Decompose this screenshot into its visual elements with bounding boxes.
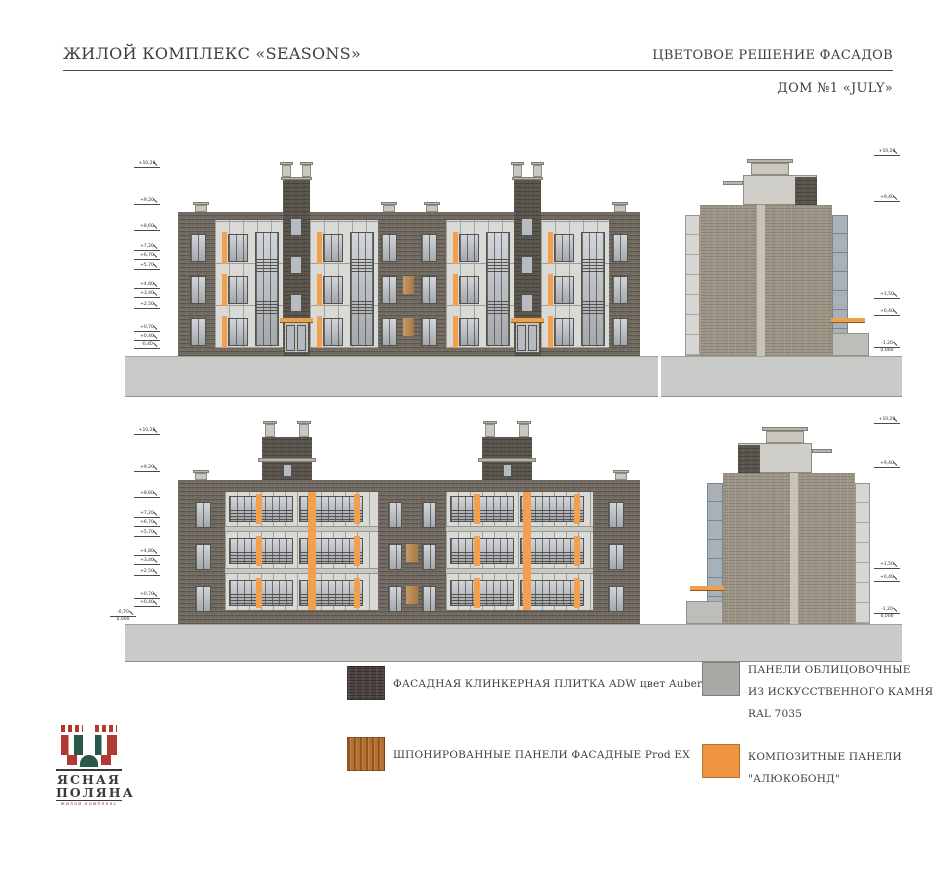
elevation-marker: +9,20 — [134, 465, 160, 472]
chimney-cap — [511, 162, 524, 165]
roof-vent-cap — [193, 470, 209, 473]
entrance-door — [286, 325, 295, 351]
legend-label: ПАНЕЛИ ОБЛИЦОВОЧНЫЕ — [748, 659, 933, 681]
clinker-tile-swatch — [347, 666, 385, 700]
roof-vent — [426, 205, 438, 212]
elevation-marker: +4,80 — [134, 549, 160, 556]
roof-vent-cap — [381, 202, 397, 205]
legend-label: ШПОНИРОВАННЫЕ ПАНЕЛИ ФАСАДНЫЕ Prod EX — [393, 744, 690, 766]
drawing-sheet: ЖИЛОЙ КОМПЛЕКС «SEASONS» ЦВЕТОВОЕ РЕШЕНИ… — [0, 0, 940, 888]
elevation-marker: +0,40 — [874, 309, 900, 316]
rear-railing — [450, 552, 514, 562]
side-left-strip — [685, 215, 700, 356]
roof-vent — [615, 473, 627, 480]
panel-window — [228, 318, 248, 346]
panel-window — [323, 318, 343, 346]
penthouse-dark — [795, 177, 817, 205]
brick-window — [190, 276, 206, 304]
ground-strip-front-top — [125, 356, 658, 397]
vent-cap — [723, 181, 743, 185]
floor-slab — [446, 568, 593, 574]
roof-vent — [383, 205, 395, 212]
panel-window — [228, 234, 248, 262]
brick-window — [421, 234, 437, 262]
accent-strip — [317, 232, 322, 264]
elevation-marker: +0,40 — [134, 334, 160, 341]
elevation-marker: +0,70 — [134, 592, 160, 599]
chimney — [766, 431, 804, 443]
elevation-marker: +7,20 — [134, 244, 160, 251]
elevation-marker: +10,20 — [874, 149, 900, 156]
penthouse-dark — [738, 445, 760, 473]
composite-panels-swatch — [702, 744, 740, 778]
ground-strip-front-bottom — [125, 624, 658, 662]
tower-canopy — [478, 458, 536, 462]
elevation-marker: +5,70 — [134, 530, 160, 537]
balcony-glazing — [350, 232, 374, 346]
sheet-title: ЦВЕТОВОЕ РЕШЕНИЕ ФАСАДОВ — [652, 48, 893, 63]
brick-window — [195, 544, 211, 570]
tower-window — [290, 218, 302, 236]
logo-mark — [56, 723, 122, 767]
roof-vent-cap — [424, 202, 440, 205]
elevation-marker: +1,50 — [874, 292, 900, 299]
elevation-marker: +3,40 — [134, 558, 160, 565]
chimney — [282, 165, 291, 177]
panel-window — [459, 318, 479, 346]
brick-window — [190, 318, 206, 346]
brick-window — [388, 544, 402, 570]
entrance-door — [528, 325, 537, 351]
rear-railing — [450, 594, 514, 604]
logo-tower-right-icon — [95, 725, 117, 765]
roof-vent — [195, 473, 207, 480]
brick-window — [381, 276, 397, 304]
side-left-strip — [855, 483, 870, 624]
elevation-marker: -1,200,000 — [874, 607, 900, 619]
header-rule — [63, 70, 893, 71]
ground-strip-side-bottom — [658, 624, 902, 662]
elevation-marker: +9,40 — [874, 461, 900, 468]
elevation-marker: +6,70 — [134, 253, 160, 260]
accent-strip — [354, 578, 360, 608]
accent-strip — [574, 578, 580, 608]
wood-panel — [403, 276, 414, 294]
balcony-glazing — [255, 232, 279, 346]
accent-strip — [256, 578, 262, 608]
brick-window — [608, 544, 624, 570]
tower-window — [521, 256, 533, 274]
elevation-marker: +2,50 — [134, 569, 160, 576]
accent-strip — [308, 492, 316, 610]
roof-vent — [195, 205, 207, 212]
tower-window — [283, 464, 292, 477]
side-base — [686, 601, 723, 624]
side-wall — [700, 205, 832, 356]
elevation-marker: +8,60 — [134, 491, 160, 498]
elevation-marker: +2,50 — [134, 302, 160, 309]
accent-strip — [256, 536, 262, 566]
accent-strip — [453, 274, 458, 306]
brick-window — [422, 502, 436, 528]
legend-label: "АЛЮКОБОНД" — [748, 768, 902, 790]
side-elevation-drawing-bottom — [685, 433, 870, 624]
balcony-railing — [486, 300, 510, 314]
tower-window — [521, 294, 533, 312]
brick-window — [421, 318, 437, 346]
ground-strip-side-top — [661, 356, 902, 397]
elevation-marker: +6,70 — [134, 520, 160, 527]
logo: ЯСНАЯ ПОЛЯНА жилой комплекс — [56, 723, 122, 807]
chimney-cap — [531, 162, 544, 165]
balcony-railing — [581, 258, 605, 272]
logo-name-line2: ПОЛЯНА — [56, 786, 122, 799]
brick-window — [612, 234, 628, 262]
roof-vent — [614, 205, 626, 212]
balcony-railing — [581, 300, 605, 314]
brick-window — [381, 234, 397, 262]
elevation-marker: +8,60 — [134, 224, 160, 231]
accent-strip — [222, 274, 227, 306]
tower-window — [503, 464, 512, 477]
elevation-marker: -1,200,000 — [874, 341, 900, 353]
elevation-marker: +10,20 — [874, 417, 900, 424]
panel-window — [554, 234, 574, 262]
chimney-cap — [762, 427, 808, 431]
elevation-marker: +9,20 — [134, 198, 160, 205]
balcony-railing — [255, 258, 279, 272]
elevation-marker: +10,20 — [134, 161, 160, 168]
brick-window — [388, 502, 402, 528]
accent-strip — [453, 316, 458, 348]
balcony-railing — [486, 258, 510, 272]
tower-canopy — [258, 458, 316, 462]
panel-window — [323, 234, 343, 262]
accent-strip — [222, 232, 227, 264]
side-seam — [757, 205, 765, 356]
accent-strip — [574, 494, 580, 524]
tower-window — [290, 256, 302, 274]
accent-strip — [474, 536, 480, 566]
side-seam — [790, 473, 798, 624]
balcony-railing — [350, 300, 374, 314]
floor-slab — [225, 568, 378, 574]
panel-window — [459, 234, 479, 262]
side-canopy — [831, 318, 865, 323]
roof-vent-cap — [193, 202, 209, 205]
legend-label: ФАСАДНАЯ КЛИНКЕРНАЯ ПЛИТКА ADW цвет Aube… — [393, 673, 726, 695]
side-wall — [723, 473, 855, 624]
brick-window — [388, 586, 402, 612]
entrance-door — [297, 325, 306, 351]
chimney-cap — [483, 421, 497, 424]
elevation-marker: +4,80 — [134, 282, 160, 289]
legend-label: КОМПОЗИТНЫЕ ПАНЕЛИ — [748, 746, 902, 768]
accent-strip — [256, 494, 262, 524]
elevation-marker: -0,700,000 — [110, 610, 136, 622]
elevation-marker: +3,40 — [134, 291, 160, 298]
accent-strip — [222, 316, 227, 348]
floor-slab — [446, 526, 593, 532]
balcony-railing — [255, 300, 279, 314]
panel-window — [228, 276, 248, 304]
accent-strip — [548, 232, 553, 264]
balcony-glazing — [486, 232, 510, 346]
entrance-door — [517, 325, 526, 351]
front-elevation-drawing — [178, 212, 640, 356]
accent-strip — [317, 316, 322, 348]
chimney — [302, 165, 311, 177]
accent-strip — [317, 274, 322, 306]
legend-label: ИЗ ИСКУССТВЕННОГО КАМНЯ — [748, 681, 933, 703]
chimney — [513, 165, 522, 177]
legend-label: RAL 7035 — [748, 703, 933, 725]
brick-window — [195, 586, 211, 612]
rear-elevation-drawing — [178, 480, 640, 624]
chimney — [299, 424, 309, 437]
wood-panel — [406, 586, 418, 604]
elevation-marker: +10,20 — [134, 428, 160, 435]
chimney — [533, 165, 542, 177]
chimney-cap — [300, 162, 313, 165]
accent-strip — [354, 494, 360, 524]
logo-caption: жилой комплекс — [56, 802, 122, 807]
logo-arch-icon — [80, 755, 98, 767]
accent-strip — [474, 494, 480, 524]
elevation-marker: -0,40 — [134, 342, 160, 349]
brick-window — [422, 586, 436, 612]
artificial-stone-swatch — [702, 662, 740, 696]
chimney-cap — [297, 421, 311, 424]
accent-strip — [548, 274, 553, 306]
brick-window — [381, 318, 397, 346]
chimney — [519, 424, 529, 437]
chimney-cap — [280, 162, 293, 165]
side-canopy — [690, 586, 724, 591]
accent-strip — [523, 492, 531, 610]
rear-railing — [450, 510, 514, 520]
house-subtitle: ДОМ №1 «JULY» — [777, 81, 893, 96]
brick-window — [608, 586, 624, 612]
side-base — [832, 333, 869, 356]
floor-slab — [225, 526, 378, 532]
brick-window — [612, 318, 628, 346]
brick-window — [612, 276, 628, 304]
panel-window — [459, 276, 479, 304]
accent-strip — [474, 578, 480, 608]
logo-rule — [56, 769, 122, 771]
brick-window — [421, 276, 437, 304]
roof-vent-cap — [612, 202, 628, 205]
chimney — [265, 424, 275, 437]
veneered-panels-swatch — [347, 737, 385, 771]
balcony-glazing — [581, 232, 605, 346]
panel-window — [323, 276, 343, 304]
logo-tower-left-icon — [61, 725, 83, 765]
logo-rule — [56, 800, 122, 801]
chimney-cap — [517, 421, 531, 424]
panel-window — [554, 276, 574, 304]
brick-window — [190, 234, 206, 262]
project-title: ЖИЛОЙ КОМПЛЕКС «SEASONS» — [63, 44, 361, 63]
accent-strip — [574, 536, 580, 566]
elevation-marker: +0,70 — [134, 325, 160, 332]
tower-window — [290, 294, 302, 312]
brick-window — [422, 544, 436, 570]
chimney-cap — [747, 159, 793, 163]
accent-strip — [548, 316, 553, 348]
balcony-railing — [350, 258, 374, 272]
elevation-marker: +5,70 — [134, 263, 160, 270]
chimney — [751, 163, 789, 175]
elevation-marker: +9,40 — [874, 195, 900, 202]
tower-cap — [512, 177, 543, 180]
side-right-strip — [707, 483, 723, 617]
brick-window — [195, 502, 211, 528]
side-right-strip — [832, 215, 848, 349]
vent-cap — [812, 449, 832, 453]
elevation-marker: +1,50 — [874, 562, 900, 569]
tower-window — [521, 218, 533, 236]
brick-window — [608, 502, 624, 528]
chimney — [485, 424, 495, 437]
accent-strip — [354, 536, 360, 566]
tower-cap — [281, 177, 312, 180]
chimney-cap — [263, 421, 277, 424]
elevation-marker: +0,40 — [874, 575, 900, 582]
elevation-marker: +7,20 — [134, 511, 160, 518]
wood-panel — [406, 544, 418, 562]
wood-panel — [403, 318, 414, 336]
panel-window — [554, 318, 574, 346]
accent-strip — [453, 232, 458, 264]
roof-vent-cap — [613, 470, 629, 473]
side-elevation-drawing-top — [685, 165, 870, 356]
elevation-marker: +0,40 — [134, 600, 160, 607]
